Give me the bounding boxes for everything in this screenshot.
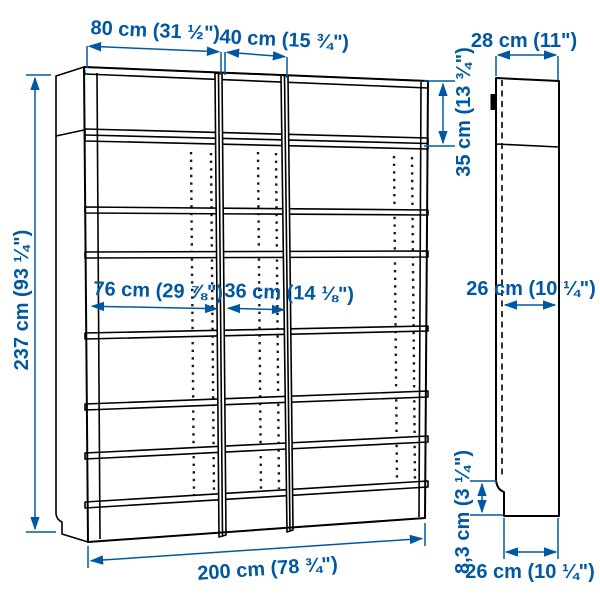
- width-middle-label: 40 cm (15 ¾"): [219, 26, 349, 54]
- extension-height-label: 35 cm (13 ¾"): [453, 47, 475, 177]
- dim-total-height: 237 cm (93 ¼"): [11, 75, 56, 532]
- total-width-label: 200 cm (78 ¾"): [197, 553, 339, 585]
- depth-shelf-label: 26 cm (10 ¼"): [466, 278, 596, 300]
- side-fitting-mark: [491, 94, 496, 110]
- front-left-side-panel: [56, 67, 88, 542]
- depth-top-label: 28 cm (11"): [471, 30, 577, 52]
- inner-width-middle-label: 36 cm (14 ⅛"): [224, 280, 354, 306]
- dimension-drawing: 80 cm (31 ½") 40 cm (15 ¾") 237 cm (93 ¼…: [0, 0, 600, 600]
- dim-width-left-section: 80 cm (31 ½"): [87, 17, 221, 74]
- front-view: [56, 67, 428, 542]
- dim-depth-top: 28 cm (11"): [471, 30, 577, 80]
- plinth-height-label: 8,3 cm (3 ¼"): [452, 450, 474, 574]
- total-height-label: 237 cm (93 ¼"): [11, 230, 33, 371]
- shelf: [85, 251, 428, 258]
- dim-extension-height: 35 cm (13 ¾"): [424, 47, 475, 177]
- bookcase-dimension-diagram: 80 cm (31 ½") 40 cm (15 ¾") 237 cm (93 ¼…: [0, 0, 600, 600]
- dim-depth-base: 26 cm (10 ¼"): [465, 518, 595, 583]
- inner-width-left-label: 76 cm (29 ⅞"): [93, 278, 223, 304]
- width-left-label: 80 cm (31 ½"): [90, 17, 220, 45]
- depth-base-label: 26 cm (10 ¼"): [465, 561, 595, 583]
- dim-width-middle-section: 40 cm (15 ¾"): [219, 26, 349, 78]
